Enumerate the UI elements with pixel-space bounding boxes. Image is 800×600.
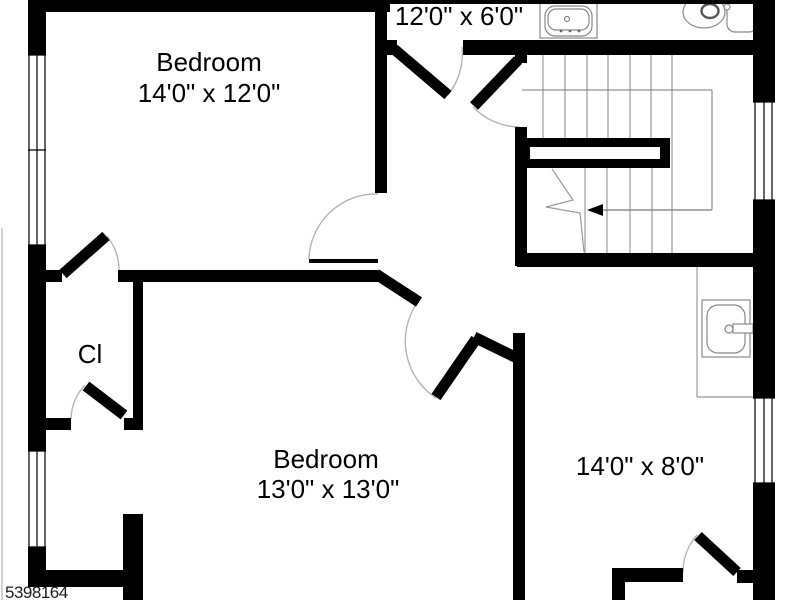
room-right-dims-label: 14'0" x 8'0" [576, 451, 704, 481]
room-right-closet-wall [737, 570, 753, 583]
right-wall [753, 483, 775, 600]
room-labels: 12'0" x 6'0" Bedroom 14'0" x 12'0" Cl Be… [78, 1, 704, 504]
top-wall [28, 0, 390, 12]
stairs-bottom-wall [517, 253, 755, 267]
bedroom-bottom-dims-label: 13'0" x 13'0" [257, 474, 400, 504]
bedroom-top-name-label: Bedroom [156, 47, 262, 77]
closet-bottom-wall [124, 418, 143, 430]
faucet-icon [733, 324, 753, 333]
hall-dims-label: 12'0" x 6'0" [395, 1, 523, 31]
stair-railing-inner [530, 147, 660, 159]
stair-direction-arrow [587, 204, 712, 216]
angled-wall [376, 274, 419, 302]
watermark-id: 5398164 [5, 583, 68, 600]
closet-top-door-arc [107, 236, 119, 274]
bedroom-bottom-name-label: Bedroom [273, 444, 379, 474]
bedroom-top-door-arc [309, 194, 378, 259]
bedroom-bottom-door-arc [405, 303, 436, 398]
top-bathroom-fixtures [540, 0, 757, 38]
window-left-bottom [28, 451, 46, 547]
center-wall [513, 333, 525, 600]
bathroom-wall [463, 40, 755, 55]
closet-top-door [63, 236, 106, 274]
toilet-icon [683, 0, 757, 32]
right-wall [753, 200, 775, 398]
side-bathroom-fixtures [697, 265, 753, 397]
window-right-top [753, 102, 775, 200]
closet-label: Cl [78, 339, 103, 369]
floor-plan-svg: 12'0" x 6'0" Bedroom 14'0" x 12'0" Cl Be… [0, 0, 800, 600]
hall-wall [118, 270, 378, 282]
sink-icon [545, 6, 592, 36]
right-wall [753, 0, 775, 102]
hall-door-arc [448, 47, 462, 95]
left-wall [28, 0, 46, 55]
hall-door [394, 49, 448, 95]
bedroom-bottom-door [436, 339, 476, 397]
door-leaves [63, 49, 737, 572]
window-right-bottom [753, 398, 775, 483]
hall-wall [43, 270, 62, 282]
bedroom-top-right-wall [375, 0, 387, 193]
room-right-closet-door [698, 536, 737, 572]
bathroom-door-arc [473, 107, 519, 127]
room-right-closet-stub [612, 568, 625, 600]
stair-break-symbol [546, 169, 584, 252]
closet-bottom-door [86, 386, 124, 415]
bedroom-top-dims-label: 14'0" x 12'0" [138, 78, 281, 108]
floor-plan: 12'0" x 6'0" Bedroom 14'0" x 12'0" Cl Be… [0, 0, 800, 600]
arrowhead-left-icon [587, 204, 603, 216]
bathroom-door [474, 60, 518, 106]
angled-wall [474, 337, 519, 359]
window-left-top [28, 55, 46, 245]
closet-bottom-wall [43, 418, 71, 430]
closet-right-wall [133, 272, 143, 423]
bottom-left-stub-wall [123, 514, 143, 600]
